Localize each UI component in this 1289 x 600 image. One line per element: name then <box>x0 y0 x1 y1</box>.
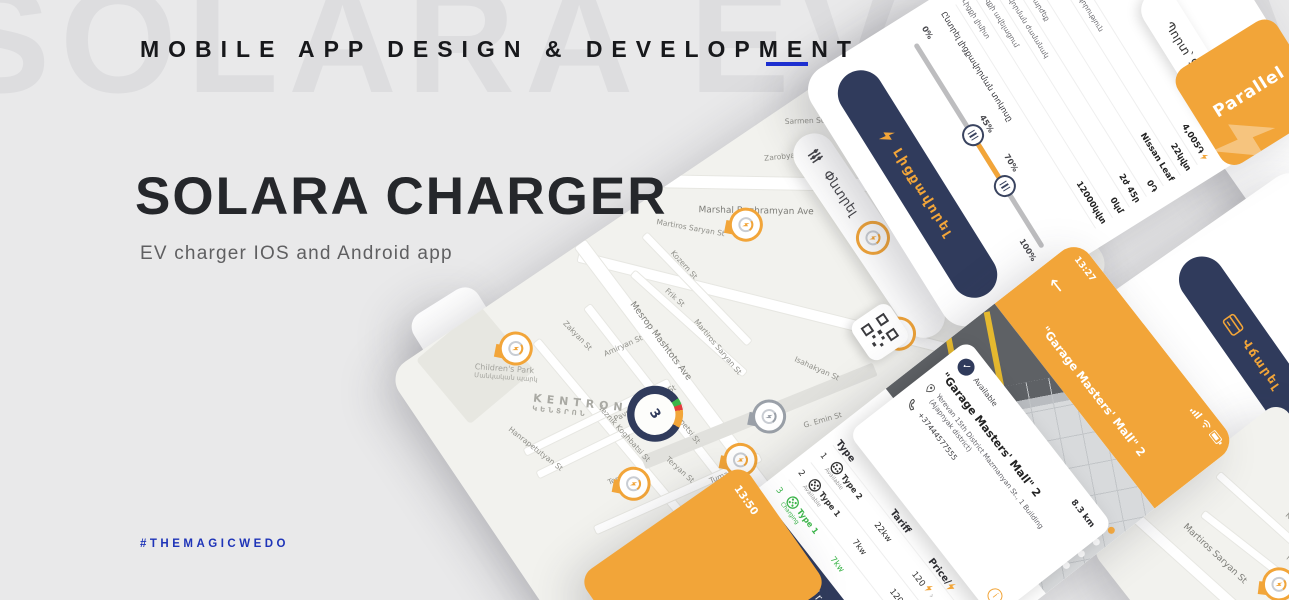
phone-collage: Proshyan Street Sarmen St Zarobyan St Ma… <box>0 0 1289 600</box>
street-label: Zakyan St <box>561 319 594 352</box>
street-label: Isahakyan St <box>793 355 841 383</box>
signal-icon <box>1189 405 1203 419</box>
phone-icon <box>905 398 919 412</box>
district-label: KENTRONԿԵՆՏՐՈՆ <box>532 392 628 423</box>
street-label: Teryan St <box>664 455 696 485</box>
credit-card-icon <box>1221 312 1245 337</box>
statusbar-time: 13:27 <box>1072 255 1098 284</box>
page-subtitle: EV charger IOS and Android app <box>140 243 453 265</box>
statusbar-time: 13:50 <box>731 483 760 517</box>
chevron-right-icon: › <box>926 592 936 600</box>
street-label: Sarmen St <box>785 116 824 126</box>
wifi-icon <box>1199 418 1212 432</box>
page-title: SOLARA CHARGER <box>135 166 667 227</box>
back-arrow-icon[interactable]: ← <box>1044 274 1069 298</box>
info-icon[interactable]: i <box>984 585 1005 600</box>
lightning-icon <box>1199 152 1210 162</box>
search-placeholder: Փնտրել <box>820 168 861 219</box>
slider-min-label: 0% <box>920 24 935 40</box>
eyebrow-underline <box>766 62 808 66</box>
hero-page: SOLARA EV CHARG MOBILE APP DESIGN & DEVE… <box>0 0 1289 600</box>
street-label: Hanrapetutyan St <box>507 425 565 473</box>
filter-icon <box>806 146 825 165</box>
hashtag: #THEMAGICWEDO <box>140 538 289 550</box>
availability-label: Available <box>971 376 999 408</box>
eyebrow-heading: MOBILE APP DESIGN & DEVELOPMENT <box>140 36 860 63</box>
location-pin-icon <box>923 382 937 395</box>
lightning-icon <box>878 127 898 145</box>
slider-high-label: 70% <box>1002 152 1020 173</box>
cluster-count: 3 <box>627 385 684 442</box>
battery-icon <box>1209 430 1225 447</box>
check-icon: ✓ <box>954 355 978 379</box>
qr-code-icon <box>860 313 899 352</box>
street-label: Martiros Saryan St <box>1181 522 1249 586</box>
